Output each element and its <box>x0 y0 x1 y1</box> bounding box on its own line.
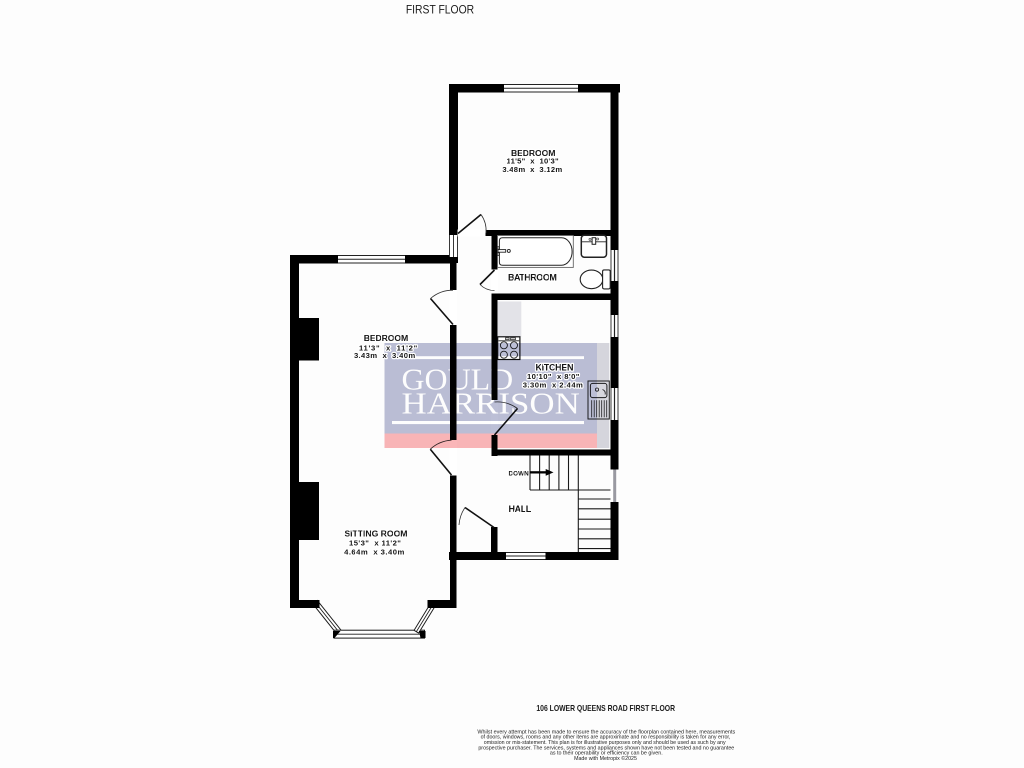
svg-text:BATHROOM: BATHROOM <box>508 272 557 282</box>
svg-text:3.30m x 2.44m: 3.30m x 2.44m <box>523 380 583 389</box>
svg-text:DOWN: DOWN <box>509 470 530 477</box>
svg-text:HARRISON: HARRISON <box>402 385 580 420</box>
svg-text:FIRST FLOOR: FIRST FLOOR <box>406 3 475 17</box>
svg-text:106 LOWER QUEENS ROAD FIRST FL: 106 LOWER QUEENS ROAD FIRST FLOOR <box>536 704 675 713</box>
svg-text:3.43m x 3.40m: 3.43m x 3.40m <box>354 351 415 360</box>
svg-text:KITCHEN: KITCHEN <box>536 363 574 373</box>
svg-text:BEDROOM: BEDROOM <box>364 333 409 343</box>
svg-text:4.64m x 3.40m: 4.64m x 3.40m <box>344 548 404 557</box>
svg-text:HALL: HALL <box>509 504 532 514</box>
svg-text:3.48m x 3.12m: 3.48m x 3.12m <box>502 165 562 174</box>
svg-text:SITTING ROOM: SITTING ROOM <box>344 529 407 539</box>
svg-text:15'3" x 11'2": 15'3" x 11'2" <box>349 539 401 548</box>
svg-text:Made with Metropix ©2025: Made with Metropix ©2025 <box>574 755 637 762</box>
